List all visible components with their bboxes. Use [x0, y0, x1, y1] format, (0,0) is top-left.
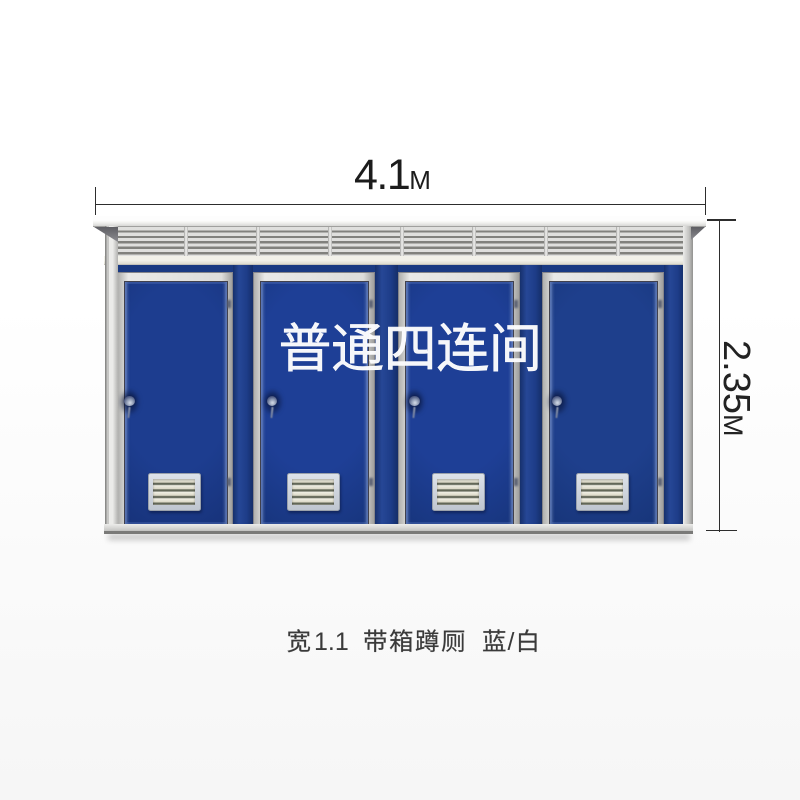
svg-text:/: / — [508, 628, 515, 656]
svg-text:1.1: 1.1 — [314, 628, 349, 656]
